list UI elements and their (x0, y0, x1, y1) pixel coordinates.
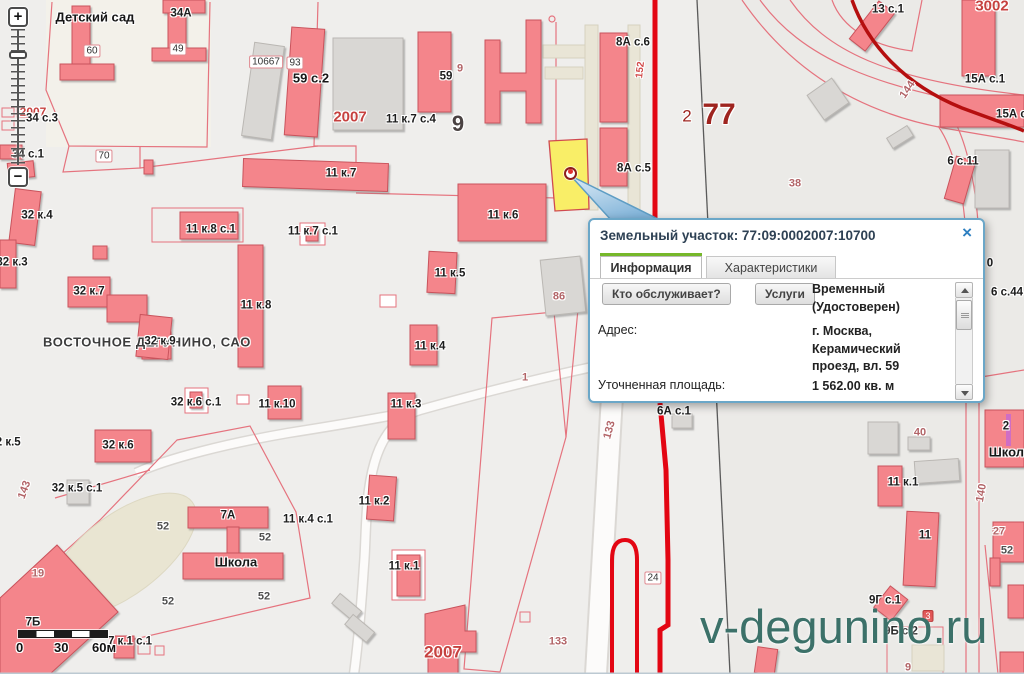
services-button[interactable]: Услуги (755, 283, 815, 305)
scroll-up-button[interactable] (955, 282, 973, 298)
scrollbar-thumb[interactable] (956, 300, 972, 330)
watermark: v-degunino.ru (700, 599, 987, 654)
popup-scrollbar (955, 282, 973, 400)
scale-bar: 0 30 60м (16, 626, 136, 660)
parcel-status-value: Временный (Удостоверен) (812, 281, 950, 316)
zoom-in-button[interactable]: + (8, 7, 28, 27)
area-label: Уточненная площадь: (598, 378, 725, 392)
popup-title: Земельный участок: 77:09:0002007:10700 (600, 228, 876, 243)
address-value: г. Москва, Керамический проезд, вл. 59 (812, 323, 950, 376)
parcel-info-popup: Земельный участок: 77:09:0002007:10700 ×… (588, 218, 985, 403)
close-icon[interactable]: × (962, 224, 972, 241)
scrollbar-track[interactable] (955, 298, 973, 384)
who-services-button[interactable]: Кто обслуживает? (602, 283, 731, 305)
scale-tick: 0 (16, 640, 23, 655)
zoom-slider-handle[interactable] (9, 51, 27, 59)
tab-characteristics[interactable]: Характеристики (706, 256, 836, 279)
cadastral-map-app: Детский сад34А6049106679359 с.2200711 к.… (0, 0, 1024, 674)
scroll-up-icon (961, 288, 969, 293)
zoom-control: + − (7, 7, 31, 189)
zoom-out-button[interactable]: − (8, 167, 28, 187)
parcel-marker-icon[interactable] (564, 167, 577, 180)
scale-tick: 30 (54, 640, 68, 655)
scale-strip (18, 630, 108, 638)
marker-dot (568, 169, 573, 174)
scale-tick: 60м (92, 640, 116, 655)
scroll-down-button[interactable] (955, 384, 973, 400)
area-value: 1 562.00 кв. м (812, 378, 950, 396)
marker-ring (566, 169, 575, 178)
address-label: Адрес: (598, 323, 637, 337)
tab-information[interactable]: Информация (600, 256, 702, 279)
zoom-slider-track[interactable] (11, 29, 25, 165)
tab-separator (590, 278, 983, 279)
scroll-down-icon (961, 391, 969, 396)
